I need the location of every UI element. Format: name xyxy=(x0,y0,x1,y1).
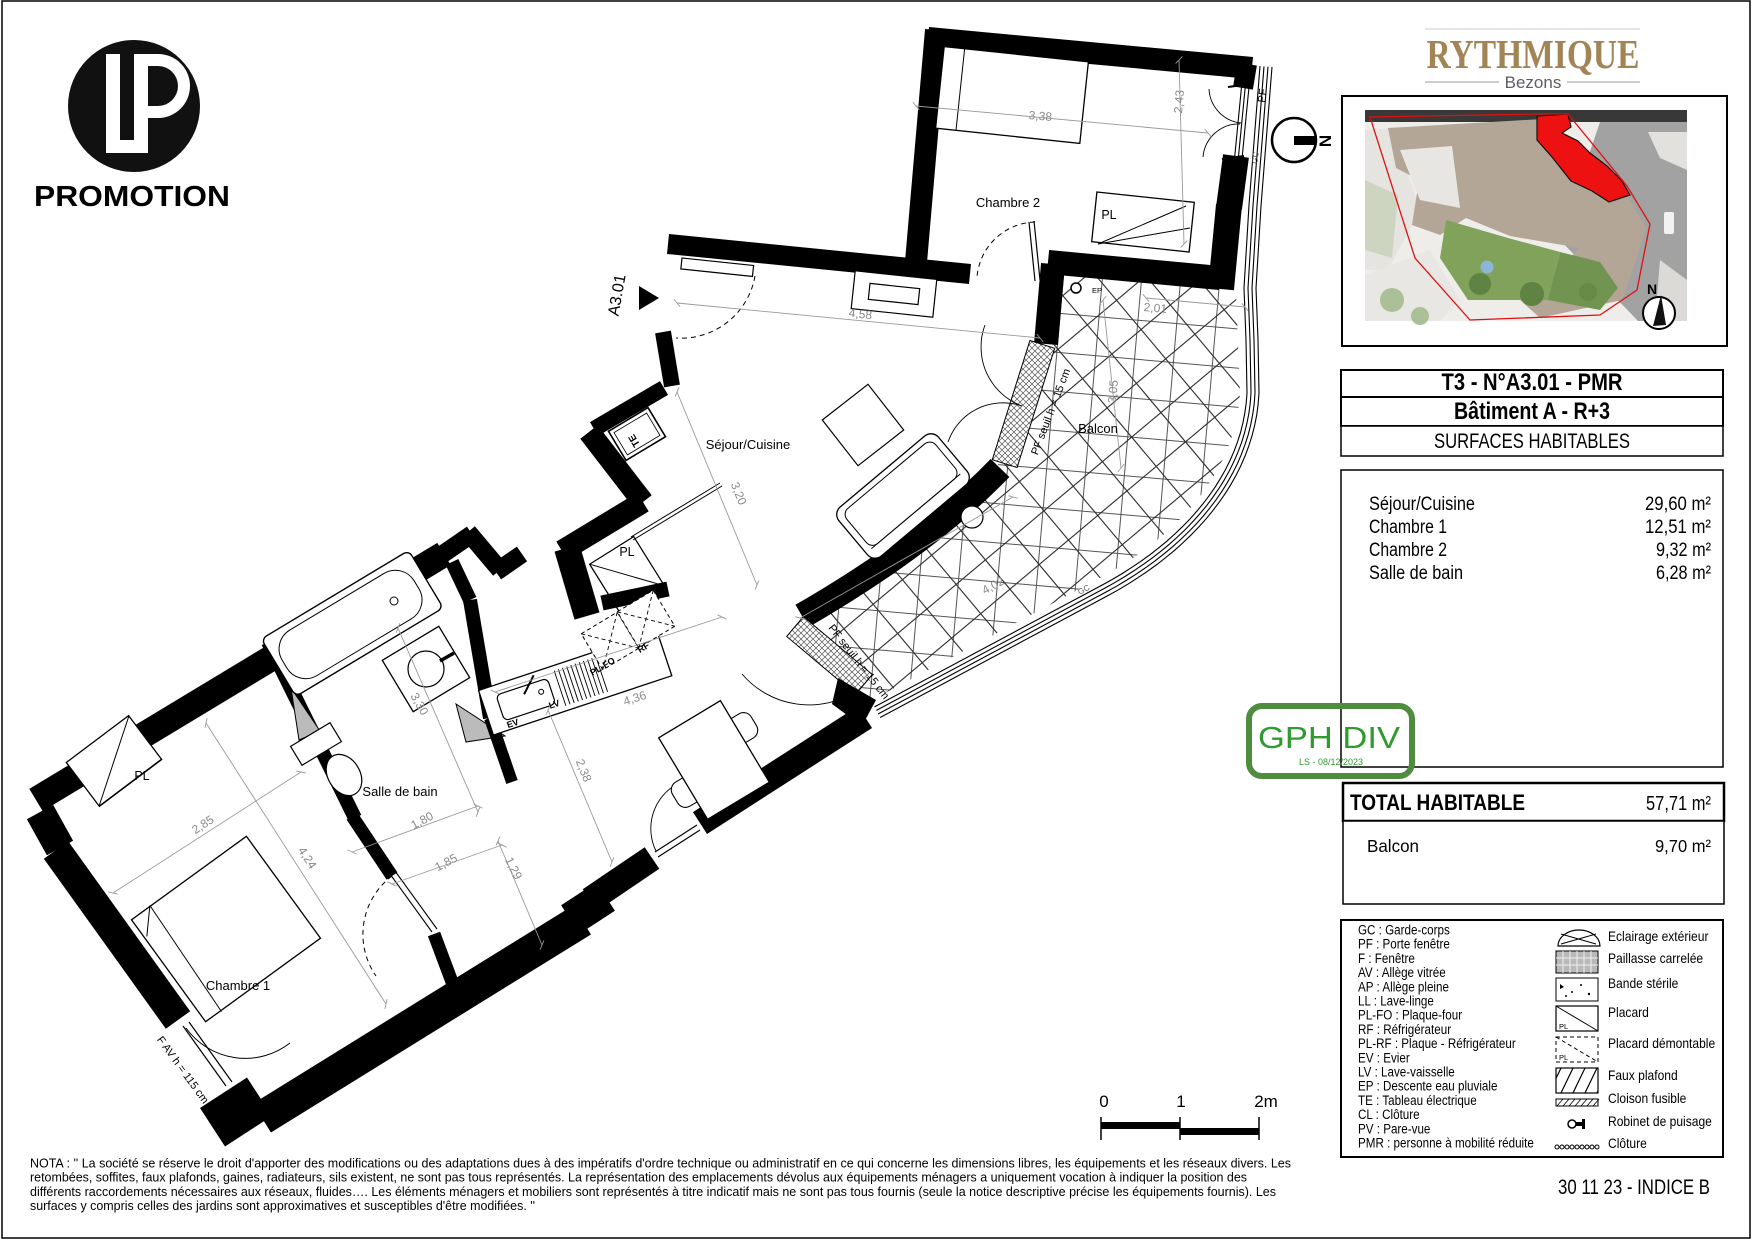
svg-text:Eclairage extérieur: Eclairage extérieur xyxy=(1608,928,1709,944)
svg-text:Séjour/Cuisine: Séjour/Cuisine xyxy=(706,437,791,452)
svg-text:GC: GC xyxy=(1250,151,1260,164)
svg-text:N: N xyxy=(1647,281,1657,297)
svg-text:T3 - N°A3.01 - PMR: T3 - N°A3.01 - PMR xyxy=(1442,369,1623,396)
svg-text:3,38: 3,38 xyxy=(1028,108,1053,124)
svg-text:Robinet de puisage: Robinet de puisage xyxy=(1608,1113,1712,1129)
svg-text:2,43: 2,43 xyxy=(1171,89,1187,114)
svg-text:Faux plafond: Faux plafond xyxy=(1608,1067,1678,1083)
svg-text:NOTA : '' La société se réserv: NOTA : '' La société se réserve le droit… xyxy=(30,1156,1291,1171)
svg-text:PL: PL xyxy=(134,769,149,783)
svg-text:PF: PF xyxy=(1256,88,1270,104)
svg-text:GPH DIV: GPH DIV xyxy=(1258,720,1400,755)
svg-text:Salle de bain: Salle de bain xyxy=(1369,563,1463,584)
svg-text:57,71 m²: 57,71 m² xyxy=(1646,793,1711,815)
svg-text:retombées, soffites, faux plaf: retombées, soffites, faux plafonds, gain… xyxy=(30,1170,1247,1185)
svg-text:Placard démontable: Placard démontable xyxy=(1608,1035,1715,1051)
svg-text:différents raccordements néces: différents raccordements nécessaires aux… xyxy=(30,1184,1276,1199)
svg-text:PL: PL xyxy=(619,545,634,559)
svg-text:30 11 23 - INDICE B: 30 11 23 - INDICE B xyxy=(1558,1175,1710,1199)
svg-text:2m: 2m xyxy=(1254,1092,1278,1111)
svg-text:Chambre 2: Chambre 2 xyxy=(976,195,1040,210)
svg-text:Bezons: Bezons xyxy=(1505,73,1562,92)
svg-text:2,01: 2,01 xyxy=(1143,300,1168,316)
svg-text:SURFACES HABITABLES: SURFACES HABITABLES xyxy=(1434,429,1630,453)
svg-text:Balcon: Balcon xyxy=(1078,421,1118,436)
svg-text:Clôture: Clôture xyxy=(1608,1135,1647,1151)
svg-text:LS - 08/12/2023: LS - 08/12/2023 xyxy=(1299,757,1363,767)
svg-text:PL: PL xyxy=(1559,1053,1568,1062)
svg-text:Paillasse carrelée: Paillasse carrelée xyxy=(1608,950,1703,966)
svg-text:PL: PL xyxy=(1559,1022,1568,1031)
svg-text:surfaces y compris celles des: surfaces y compris celles des jardins so… xyxy=(30,1198,535,1213)
svg-text:Salle de bain: Salle de bain xyxy=(362,784,437,799)
svg-text:Placard: Placard xyxy=(1608,1004,1649,1020)
svg-text:0: 0 xyxy=(1099,1092,1108,1111)
svg-text:Chambre 1: Chambre 1 xyxy=(206,978,270,993)
svg-text:Chambre 2: Chambre 2 xyxy=(1369,540,1447,561)
svg-text:RYTHMIQUE: RYTHMIQUE xyxy=(1427,31,1640,77)
svg-text:4,58: 4,58 xyxy=(848,306,873,322)
svg-text:3,05: 3,05 xyxy=(1105,379,1121,404)
svg-text:PL: PL xyxy=(1101,208,1116,222)
svg-text:Cloison fusible: Cloison fusible xyxy=(1608,1090,1686,1106)
svg-text:Balcon: Balcon xyxy=(1367,836,1419,856)
svg-text:9,32 m²: 9,32 m² xyxy=(1656,540,1711,561)
svg-text:Bande stérile: Bande stérile xyxy=(1608,975,1678,991)
svg-text:6,28 m²: 6,28 m² xyxy=(1656,563,1711,584)
svg-text:N: N xyxy=(1316,135,1335,147)
svg-text:TOTAL HABITABLE: TOTAL HABITABLE xyxy=(1350,790,1525,815)
svg-text:12,51 m²: 12,51 m² xyxy=(1645,517,1711,538)
svg-text:PROMOTION: PROMOTION xyxy=(34,181,230,213)
svg-text:9,70 m²: 9,70 m² xyxy=(1655,836,1711,856)
svg-text:Chambre 1: Chambre 1 xyxy=(1369,517,1447,538)
svg-text:Séjour/Cuisine: Séjour/Cuisine xyxy=(1369,494,1475,515)
svg-text:Bâtiment A - R+3: Bâtiment A - R+3 xyxy=(1454,398,1610,425)
svg-text:1: 1 xyxy=(1176,1092,1185,1111)
svg-text:PMR : personne à mobilité rédu: PMR : personne à mobilité réduite xyxy=(1358,1134,1534,1150)
svg-text:29,60 m²: 29,60 m² xyxy=(1645,494,1711,515)
svg-text:EP: EP xyxy=(1092,286,1102,295)
